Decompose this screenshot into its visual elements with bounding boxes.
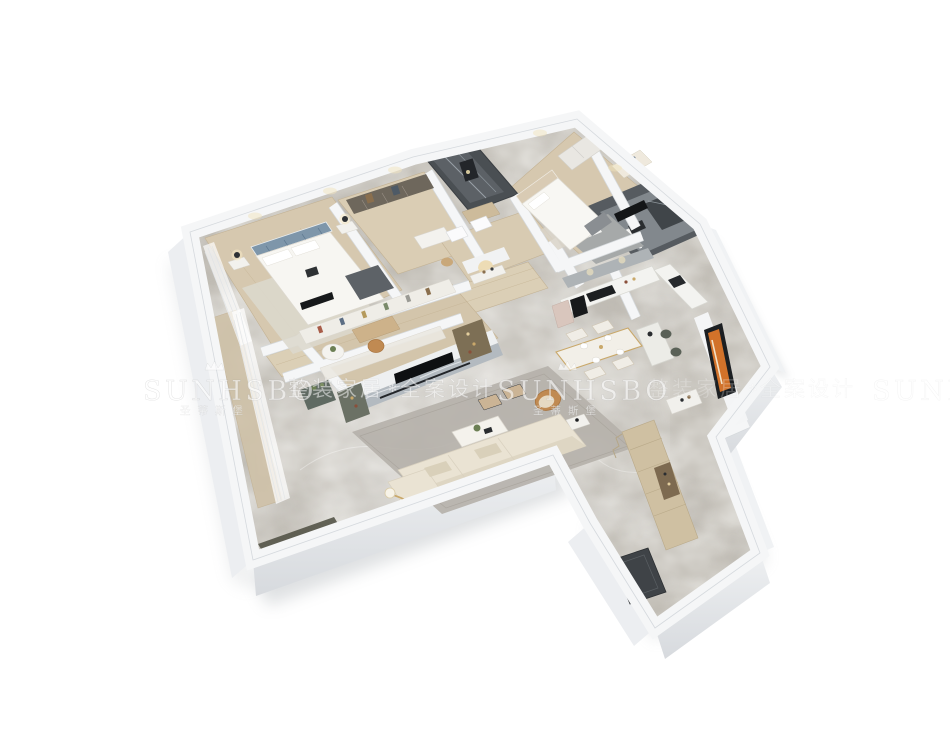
desk-chair <box>368 340 384 353</box>
table-lamp <box>234 252 240 258</box>
watermark-separator: ✻ <box>748 382 757 395</box>
plate <box>580 343 588 349</box>
bar-stool <box>661 330 672 339</box>
plate <box>604 335 612 341</box>
watermark-brand-cn: 圣蒂斯堡 <box>180 404 250 417</box>
floorplan-render: SUNHSBO 圣蒂斯堡 整装家居 ✻ 全案设计 SUNHSBO 圣蒂斯堡 整装… <box>0 0 950 733</box>
watermark-separator: ✻ <box>388 382 397 395</box>
watermark-slogan-1: 整装家居 <box>648 377 744 401</box>
watermark-brand: SUNHSBO <box>872 376 950 407</box>
bar-stool <box>671 348 682 357</box>
plate <box>616 349 624 355</box>
plate <box>592 357 600 363</box>
plant <box>474 425 481 432</box>
coffee-machine <box>648 332 653 337</box>
watermark-brand-cn: 圣蒂斯堡 <box>533 404 603 417</box>
floor-lamp <box>385 488 395 498</box>
watermark-slogan-2: 全案设计 <box>760 377 856 401</box>
watermark-brand: SUNHSBO <box>497 376 671 407</box>
watermark-slogan-1: 整装家居 <box>288 377 384 401</box>
vanity-stool <box>441 258 453 267</box>
floorplan-svg: SUNHSBO 圣蒂斯堡 整装家居 ✻ 全案设计 SUNHSBO 圣蒂斯堡 整装… <box>0 0 950 733</box>
watermark-slogan-2: 全案设计 <box>400 377 496 401</box>
plant <box>330 346 336 352</box>
table-lamp <box>342 216 348 222</box>
pendant-light <box>466 170 470 174</box>
